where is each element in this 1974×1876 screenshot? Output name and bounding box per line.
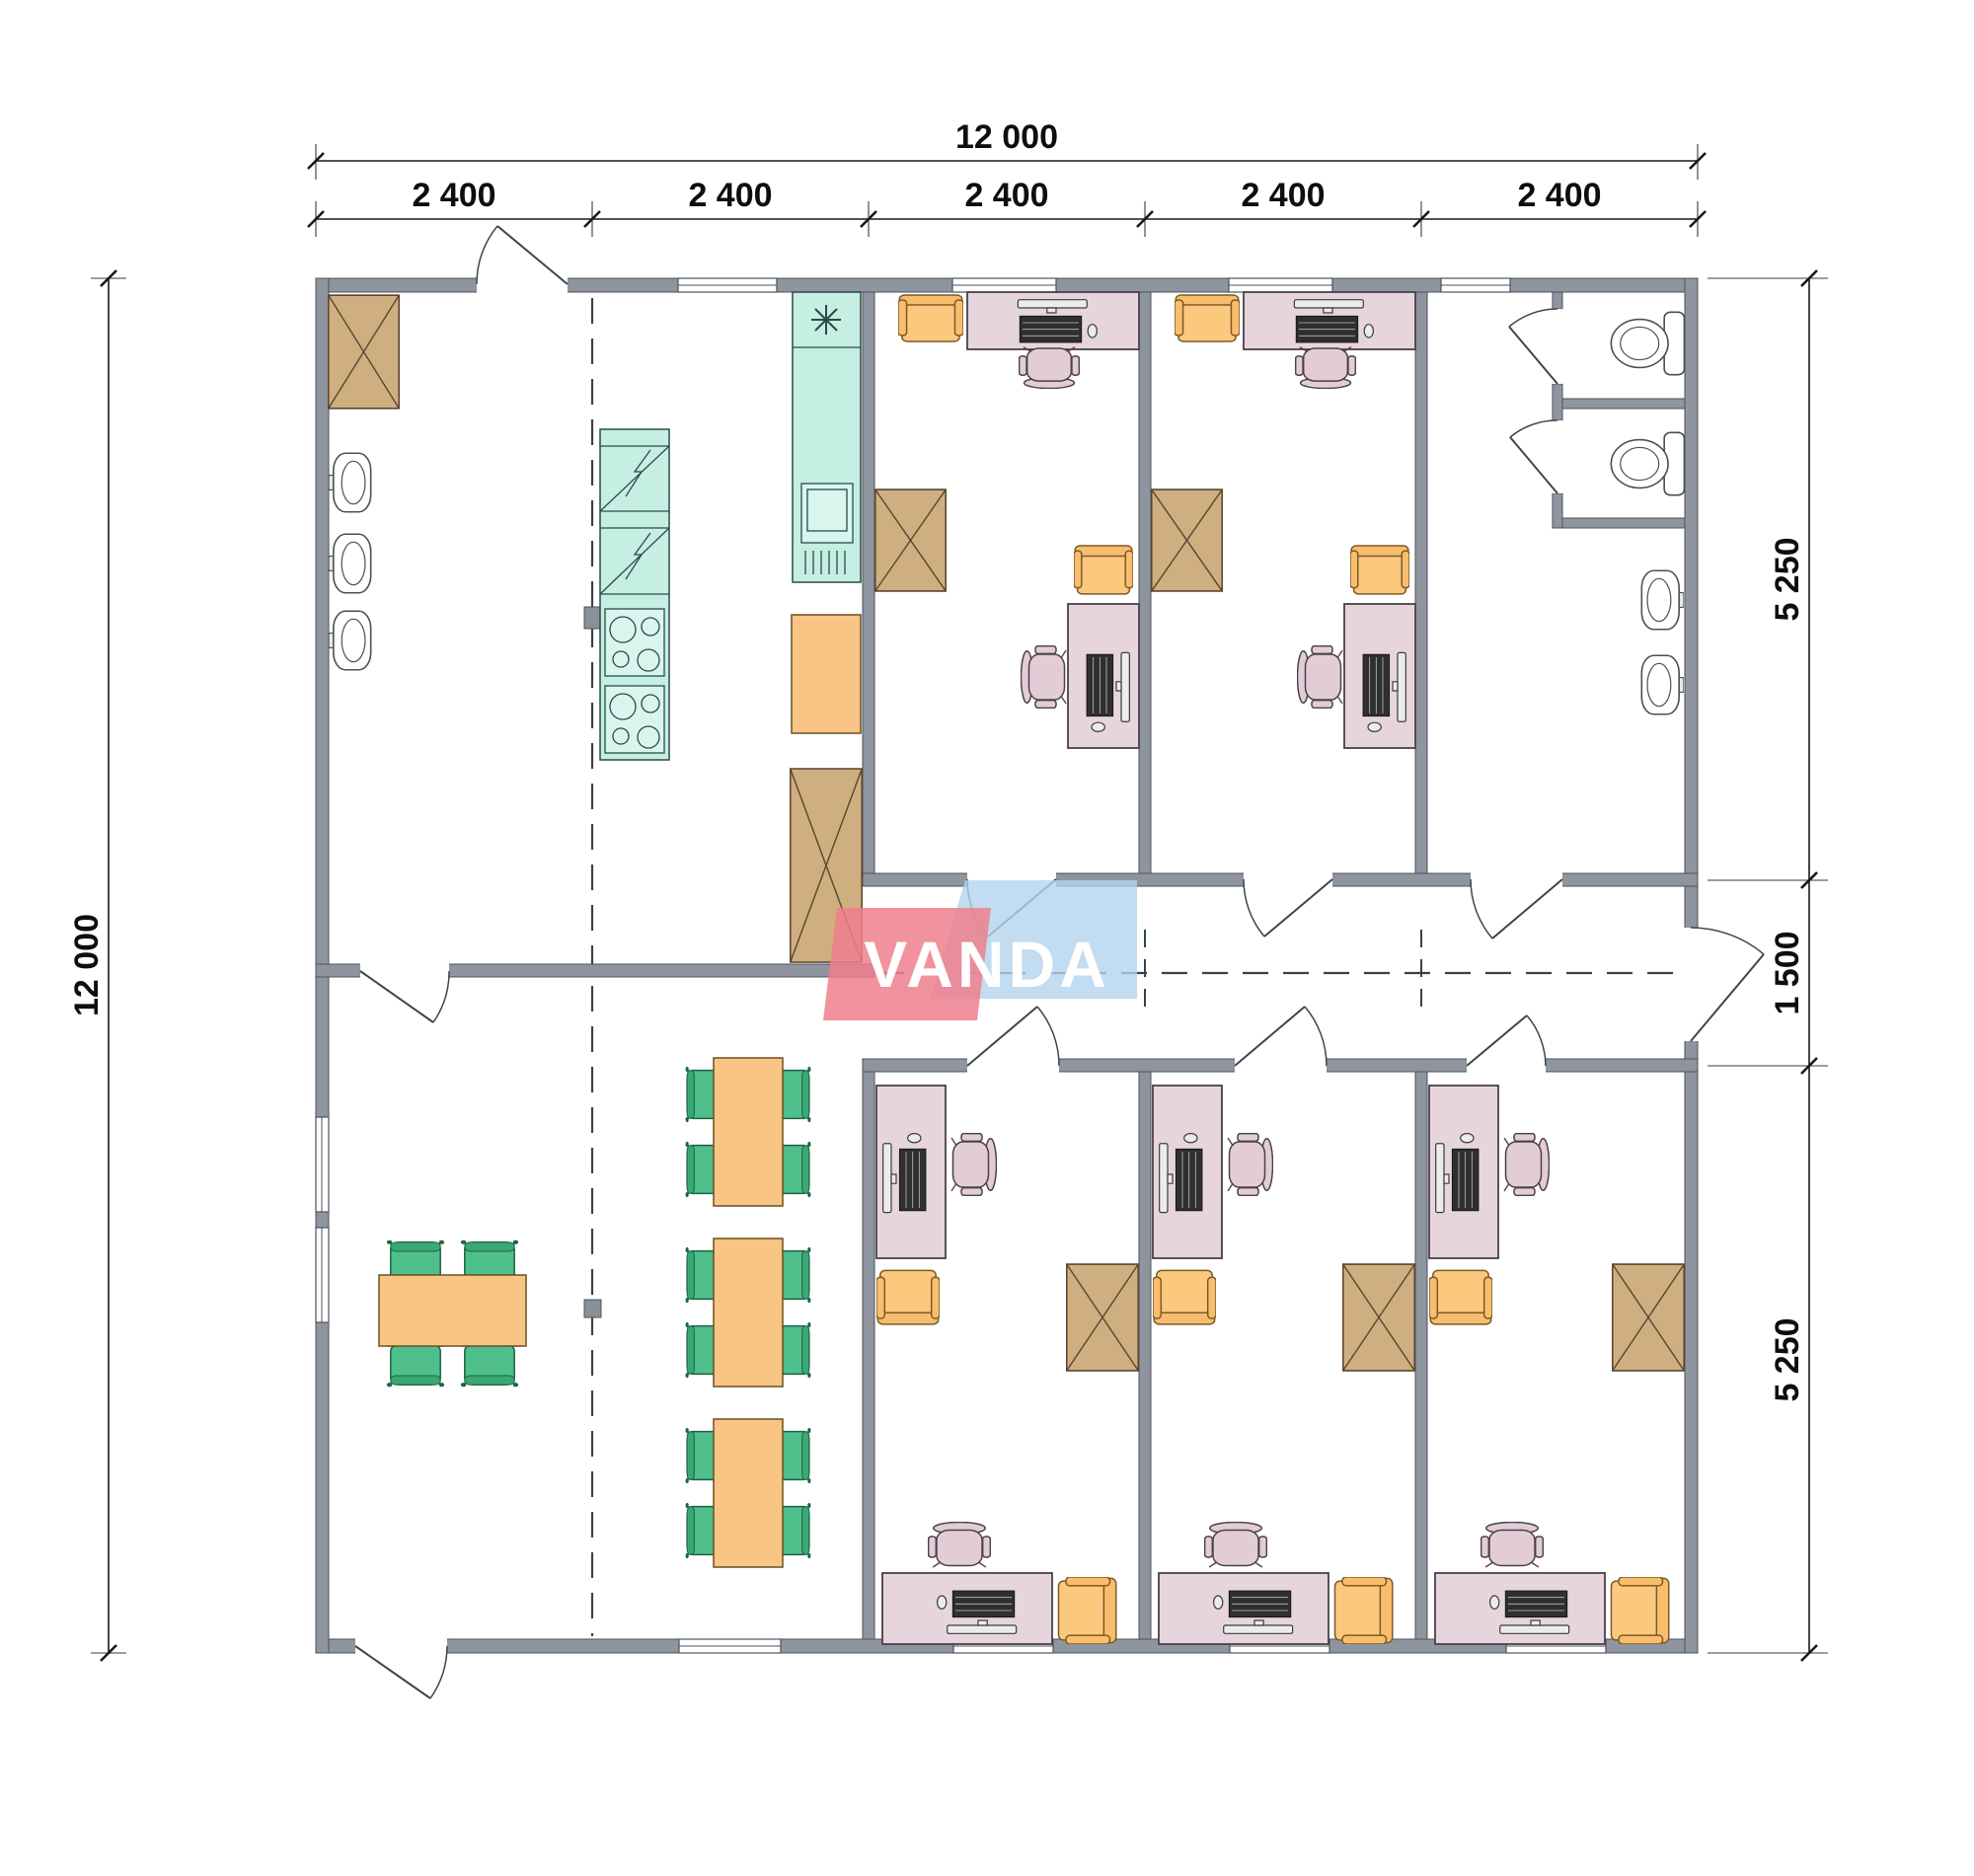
door-wc-stall-2 — [1510, 420, 1562, 493]
dim-label: 2 400 — [1241, 177, 1325, 214]
dim-top-total: 12 000 — [308, 118, 1706, 180]
window-office2-top — [1229, 278, 1332, 292]
floor-plan-stage: VANDA 12 000 2 400 2 400 2 400 2 400 2 4… — [0, 0, 1974, 1876]
visitor-chair — [898, 295, 963, 341]
wash-basin-icon — [329, 453, 371, 512]
dim-label: 1 500 — [1769, 931, 1806, 1014]
wardrobe-cabinet-icon — [1343, 1264, 1415, 1371]
office-1 — [875, 292, 1139, 748]
office-2 — [1152, 292, 1415, 748]
dim-label: 5 250 — [1769, 1317, 1806, 1401]
dining-set-3 — [686, 1419, 811, 1567]
kitchen-counter-strip — [793, 292, 861, 582]
door-entrance-corridor-right — [1683, 928, 1764, 1041]
wardrobe-cabinet-icon — [1613, 1264, 1685, 1371]
dim-label: 2 400 — [688, 177, 772, 214]
toilet-icon — [1611, 312, 1684, 374]
kitchen-table-icon — [792, 615, 861, 733]
visitor-chair — [1334, 1577, 1392, 1644]
door-office5 — [1467, 1015, 1546, 1074]
cooktop-icon — [605, 686, 664, 753]
visitor-chair — [1074, 546, 1133, 594]
wall-office1-office2 — [1139, 292, 1151, 873]
wardrobe-cabinet-icon — [1067, 1264, 1139, 1371]
meeting-set — [379, 1240, 526, 1388]
vanda-logo: VANDA — [823, 880, 1137, 1020]
wall-kitchen-office1 — [863, 292, 874, 873]
dining-set-2 — [686, 1238, 811, 1387]
meeting-table — [379, 1275, 526, 1346]
door-entrance-bottom-left — [355, 1637, 447, 1698]
office-chair — [1205, 1523, 1267, 1568]
office-chair — [1298, 646, 1343, 709]
office-chair — [1020, 347, 1080, 389]
kitchen-appliance-column — [600, 429, 669, 760]
wash-basin-icon — [329, 611, 371, 670]
wall-wc-stall-b — [1553, 384, 1562, 420]
office-chair — [1296, 347, 1356, 389]
wall-canteen-office3 — [863, 1072, 874, 1639]
door-wc-lobby — [1471, 871, 1562, 938]
wash-basin-icon — [1641, 570, 1684, 630]
door-office2 — [1244, 871, 1332, 937]
dim-label: 2 400 — [412, 177, 495, 214]
chair-green — [387, 1343, 444, 1388]
cooktop-icon — [605, 609, 664, 676]
window-canteen-left-2 — [316, 1228, 329, 1322]
office-3 — [876, 1086, 1138, 1644]
chair-green — [461, 1343, 518, 1388]
door-entrance-top — [477, 226, 568, 294]
dining-set-1 — [686, 1058, 811, 1206]
visitor-chair — [1153, 1270, 1216, 1324]
office-chair — [1228, 1134, 1273, 1196]
dim-label: 2 400 — [964, 177, 1048, 214]
dim-label: 12 000 — [68, 914, 106, 1016]
wall-office4-office5 — [1415, 1072, 1427, 1639]
wall-wc-stall-bottom — [1562, 518, 1685, 528]
visitor-chair — [1175, 295, 1240, 341]
wall-office3-office4 — [1139, 1072, 1151, 1639]
wash-basin-icon — [1641, 655, 1684, 714]
dim-label: 12 000 — [955, 118, 1058, 156]
office-chair — [1022, 646, 1067, 709]
wash-basin-icon — [329, 534, 371, 593]
dining-table — [714, 1419, 783, 1567]
dim-right-segments: 5 250 1 500 5 250 — [1708, 270, 1828, 1661]
office-chair — [1504, 1134, 1550, 1196]
floor-plan-svg: VANDA 12 000 2 400 2 400 2 400 2 400 2 4… — [0, 0, 1974, 1876]
visitor-chair — [1429, 1270, 1492, 1324]
window-canteen-bottom — [679, 1639, 781, 1653]
window-kitchen-top — [678, 278, 777, 292]
dining-table — [714, 1238, 783, 1387]
dim-label: 2 400 — [1517, 177, 1601, 214]
wardrobe-cabinet-icon — [329, 295, 400, 409]
office-chair — [951, 1134, 997, 1196]
visitor-chair — [1350, 546, 1409, 594]
window-canteen-left-1 — [316, 1117, 329, 1212]
dim-left-total: 12 000 — [68, 270, 126, 1661]
wall-office2-wc — [1415, 292, 1427, 873]
visitor-chair — [876, 1270, 940, 1324]
office-5 — [1429, 1086, 1684, 1644]
door-office4 — [1235, 1007, 1327, 1074]
wc-area — [1611, 312, 1684, 713]
visitor-chair — [1058, 1577, 1115, 1644]
door-kitchen-canteen — [360, 962, 449, 1022]
wardrobe-cabinet-icon — [1152, 489, 1223, 591]
office-chair — [929, 1523, 991, 1568]
office-chair — [1481, 1523, 1544, 1568]
wall-wc-stall-divider — [1562, 399, 1685, 409]
visitor-chair — [1611, 1577, 1668, 1644]
wall-wc-stall-a — [1553, 292, 1562, 309]
dim-top-segments: 2 400 2 400 2 400 2 400 2 400 — [308, 177, 1706, 237]
wall-wc-stall-c — [1553, 493, 1562, 528]
window-office1-top — [952, 278, 1056, 292]
column-icon — [584, 1300, 601, 1317]
logo-text: VANDA — [864, 928, 1110, 1001]
wardrobe-cabinet-icon — [875, 489, 947, 591]
door-wc-stall-1 — [1509, 309, 1562, 384]
dim-label: 5 250 — [1769, 537, 1806, 621]
dining-table — [714, 1058, 783, 1206]
office-4 — [1153, 1086, 1414, 1644]
window-wc-top — [1441, 278, 1510, 292]
toilet-icon — [1611, 432, 1684, 494]
door-office3 — [967, 1007, 1059, 1074]
